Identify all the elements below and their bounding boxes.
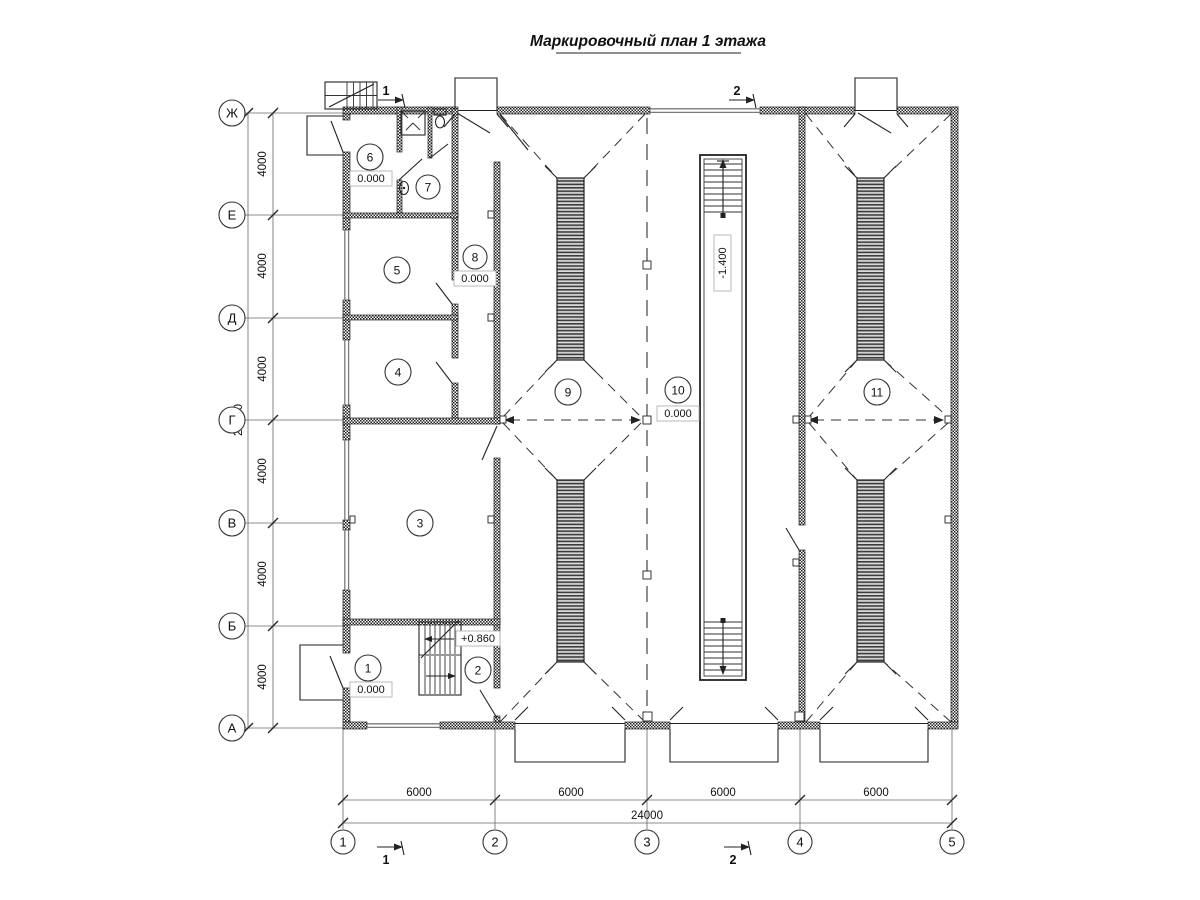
svg-text:4: 4 (796, 835, 803, 850)
section-1-bottom: 1 (377, 841, 404, 867)
svg-text:10: 10 (671, 384, 685, 398)
axis-col-3: 3 (635, 830, 659, 854)
elevation-room-6: 0.000 (350, 171, 392, 186)
svg-text:4: 4 (395, 366, 402, 380)
elevation-room-8: 0.000 (454, 271, 496, 286)
svg-text:+0.860: +0.860 (461, 633, 495, 645)
svg-text:11: 11 (871, 386, 884, 400)
svg-text:2: 2 (475, 664, 482, 678)
section-2-top: 2 (729, 84, 756, 108)
svg-text:3: 3 (643, 835, 650, 850)
room-marker-5: 5 (384, 257, 410, 283)
svg-text:-1.400: -1.400 (717, 247, 729, 278)
svg-text:В: В (228, 516, 237, 531)
dim-h-seg-1: 6000 (406, 787, 432, 799)
inspection-pit: -1.400 (700, 155, 746, 680)
svg-text:1: 1 (339, 835, 346, 850)
section-2-bottom: 2 (724, 841, 751, 867)
pit-elevation: -1.400 (714, 235, 731, 291)
svg-text:0.000: 0.000 (461, 273, 489, 285)
room-marker-3: 3 (407, 510, 433, 536)
grid-axes-left: Ж Е Д Г В Б А (219, 100, 245, 741)
doors (330, 113, 928, 720)
entrance-canopies (455, 78, 897, 110)
svg-text:5: 5 (394, 264, 401, 278)
section-1-top: 1 (378, 84, 405, 108)
svg-text:2: 2 (491, 835, 498, 850)
room-marker-9: 9 (555, 379, 581, 405)
row-extension-lines (245, 113, 343, 728)
dim-v-seg-4: 4000 (257, 458, 269, 484)
dim-v-seg-6: 4000 (257, 664, 269, 690)
svg-text:А: А (228, 721, 237, 736)
elevation-stair-landing: +0.860 (456, 631, 500, 646)
svg-text:9: 9 (565, 386, 572, 400)
svg-text:1: 1 (365, 662, 372, 676)
svg-text:0.000: 0.000 (664, 408, 692, 420)
axis-row-b: Б (219, 613, 245, 639)
elevation-room-1: 0.000 (350, 682, 392, 697)
room-marker-7: 7 (416, 175, 440, 199)
room-marker-10: 10 (665, 377, 691, 403)
svg-text:Ж: Ж (226, 106, 238, 121)
dimensions-bottom: 6000 6000 6000 6000 24000 (338, 729, 957, 829)
svg-text:7: 7 (425, 181, 432, 195)
svg-text:1: 1 (383, 853, 390, 867)
room-marker-1: 1 (355, 655, 381, 681)
room-marker-8: 8 (463, 245, 487, 269)
axis-col-4: 4 (788, 830, 812, 854)
dim-v-seg-2: 4000 (257, 253, 269, 279)
svg-text:3: 3 (417, 517, 424, 531)
skylight-right (806, 114, 951, 722)
porches (300, 116, 343, 700)
floor-plan-drawing: Маркировочный план 1 этажа 4000 4000 400… (0, 0, 1200, 900)
exterior-stair (325, 82, 377, 109)
svg-text:0.000: 0.000 (357, 684, 385, 696)
svg-text:Д: Д (228, 311, 237, 326)
dim-h-seg-2: 6000 (558, 787, 584, 799)
dim-v-seg-5: 4000 (257, 561, 269, 587)
svg-text:2: 2 (734, 84, 741, 98)
axis-row-g: Г (219, 407, 245, 433)
dim-v-seg-3: 4000 (257, 356, 269, 382)
skylight-left (500, 114, 645, 722)
axis-row-zh: Ж (219, 100, 245, 126)
svg-text:Б: Б (228, 619, 237, 634)
room-markers: 1 2 3 4 5 6 7 8 9 10 11 (355, 144, 890, 683)
axis-col-1: 1 (331, 830, 355, 854)
gate-ramps (515, 729, 928, 762)
room-marker-11: 11 (864, 379, 890, 405)
dim-h-seg-4: 6000 (863, 787, 889, 799)
dimensions-left: 4000 4000 4000 4000 4000 4000 24000 (233, 108, 343, 733)
grid-axes-bottom: 1 2 3 4 5 (331, 830, 964, 854)
room-marker-6: 6 (357, 144, 383, 170)
svg-text:5: 5 (948, 835, 955, 850)
dim-v-seg-1: 4000 (257, 151, 269, 177)
svg-text:1: 1 (383, 84, 390, 98)
title-block: Маркировочный план 1 этажа (530, 33, 766, 53)
axis-row-a: А (219, 715, 245, 741)
svg-text:0.000: 0.000 (357, 173, 385, 185)
dim-h-total: 24000 (631, 810, 663, 822)
axis-col-2: 2 (483, 830, 507, 854)
axis-col-5: 5 (940, 830, 964, 854)
dim-h-seg-3: 6000 (710, 787, 736, 799)
staircase (419, 620, 461, 695)
svg-text:8: 8 (472, 251, 479, 265)
drawing-title: Маркировочный план 1 этажа (530, 33, 766, 50)
room-marker-4: 4 (385, 359, 411, 385)
axis-row-e: Е (219, 202, 245, 228)
axis-row-d: Д (219, 305, 245, 331)
svg-text:6: 6 (367, 151, 374, 165)
svg-text:2: 2 (730, 853, 737, 867)
room-marker-2: 2 (465, 657, 491, 683)
elevation-room-10: 0.000 (657, 406, 699, 421)
axis-row-v: В (219, 510, 245, 536)
svg-text:Г: Г (228, 413, 235, 428)
svg-text:Е: Е (228, 208, 237, 223)
